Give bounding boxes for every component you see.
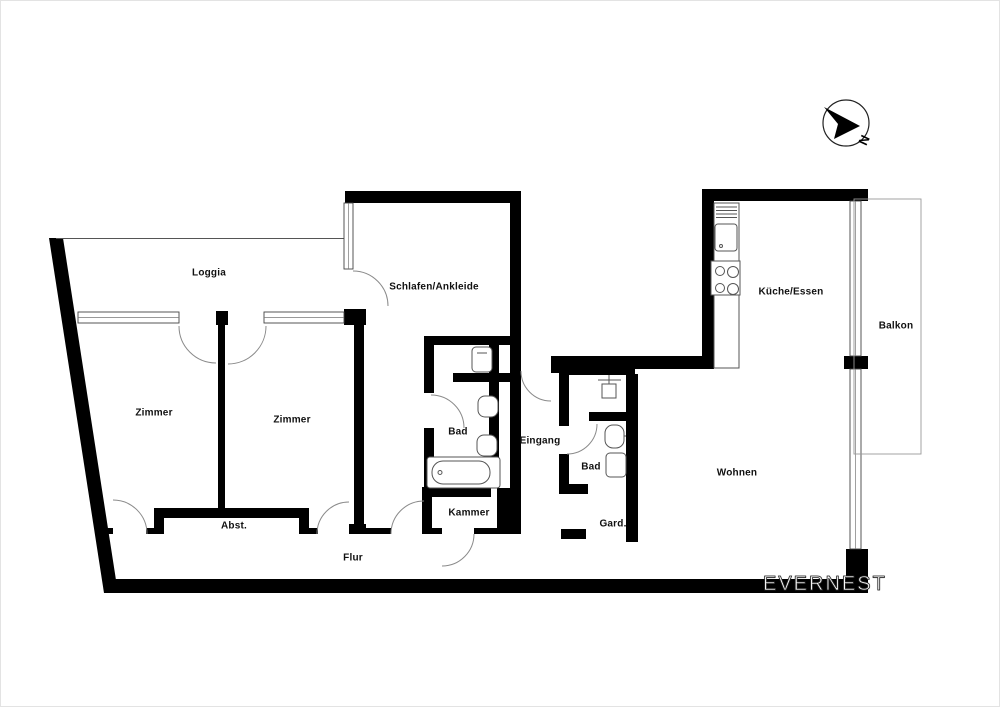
window-icon [264,312,344,323]
fixture-layer [427,203,740,488]
window-icon [850,201,861,356]
kitchen-sink-icon [715,224,737,251]
door-arc [442,534,474,566]
wall-west-slanted [49,238,118,593]
kitchen-counter [711,203,740,368]
door-arc [228,326,266,364]
room-label-eingang: Eingang [520,436,561,447]
room-label-bad-1: Bad [448,427,468,438]
sink-icon [472,347,492,372]
bathtub-icon [427,457,500,488]
compass-icon: N [823,100,873,148]
door-arc [567,424,597,454]
toilet-icon [605,425,626,448]
wall-south [104,579,868,593]
door-arc [113,500,147,534]
floor-plan-drawing: N [1,1,1000,707]
room-label-kammer: Kammer [448,508,489,519]
room-label-kueche: Küche/Essen [758,287,823,298]
room-label-zimmer-1: Zimmer [135,408,172,419]
room-label-bad-2: Bad [581,462,601,473]
room-label-wohnen: Wohnen [717,468,757,479]
window-icon [850,369,861,549]
door-arc [391,501,424,534]
compass-north-label: N [855,133,873,148]
stove-icon [711,261,740,295]
door-arc [179,326,216,363]
door-arc [431,395,464,428]
sink-icon [606,453,626,477]
toilet-icon [478,396,498,417]
wall-layer [49,189,868,593]
door-arc [353,271,388,306]
window-icon [78,312,179,323]
room-label-loggia: Loggia [192,268,226,279]
room-label-gard: Gard. [599,519,626,530]
floor-plan: N Loggia Schlafen/Ankleide Küche/Essen B… [0,0,1000,707]
watermark: EVERNEST [763,573,887,596]
room-label-balkon: Balkon [879,321,914,332]
door-arc [521,371,551,401]
bidet-icon [477,435,497,456]
room-label-schlafen: Schlafen/Ankleide [389,282,479,293]
shower-icon [598,375,621,398]
door-arc [317,502,349,534]
room-label-zimmer-2: Zimmer [273,415,310,426]
room-label-abst: Abst. [221,521,247,532]
room-label-flur: Flur [343,553,363,564]
window-icon [344,203,353,269]
